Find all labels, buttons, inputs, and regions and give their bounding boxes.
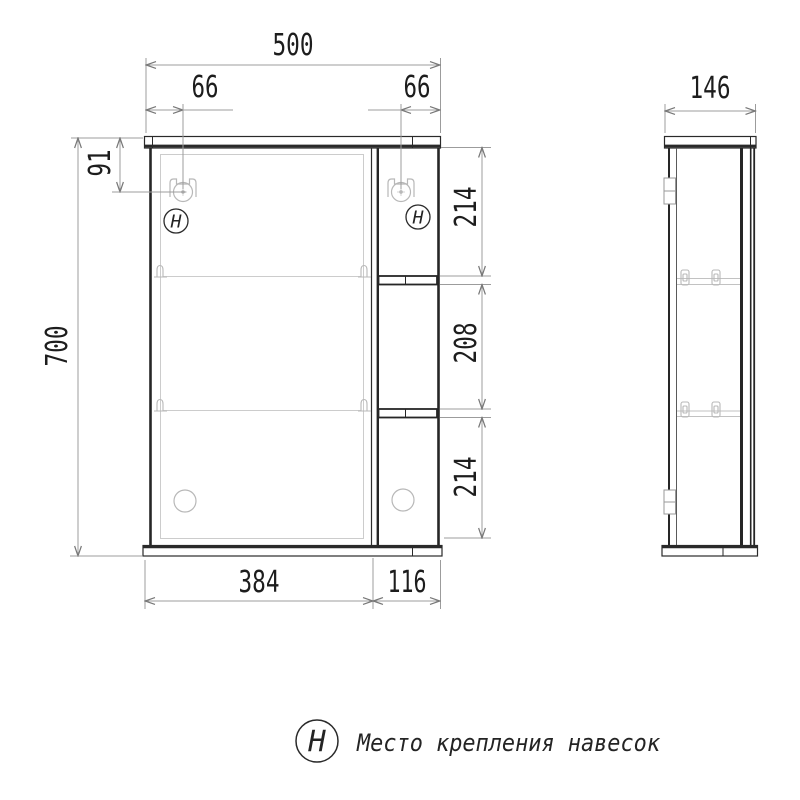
- dim-label-front-height: 700: [40, 326, 75, 367]
- dim-label-hook-right: 66: [404, 70, 431, 105]
- side-shelf-supports-upper: [677, 270, 740, 285]
- dim-label-side-depth: 146: [690, 71, 731, 106]
- dim-label-right-mid: 208: [449, 323, 484, 364]
- front-bottom-board: [143, 546, 442, 557]
- shelf-pin-icon: [712, 270, 720, 285]
- dim-label-door-width: 384: [239, 565, 280, 600]
- side-bottom-board: [662, 546, 758, 557]
- hinge-top: [664, 178, 676, 204]
- dim-label-hook-top: 91: [83, 150, 118, 177]
- shelf-clip-icon: [358, 266, 371, 278]
- dim-hook-left-offset: 66: [146, 70, 233, 189]
- hanger-mark-right: [406, 205, 430, 229]
- legend-hanger-mark-letter: Н: [307, 724, 326, 758]
- dim-front-height: 700: [40, 138, 142, 556]
- dim-label-open-shelf-width: 116: [388, 565, 427, 600]
- dim-right-chain: 214 208 214: [440, 148, 491, 539]
- bottom-hole-left: [174, 490, 196, 512]
- dim-label-hook-left: 66: [192, 70, 219, 105]
- legend: Н Место крепления навесок: [296, 720, 660, 762]
- dim-label-right-bottom: 214: [449, 457, 484, 498]
- open-shelf-upper: [379, 276, 438, 285]
- shelf-pin-icon: [712, 402, 720, 417]
- mirror-door-inner-outline: [161, 155, 364, 539]
- side-top-board: [665, 137, 757, 149]
- hanger-mark-left: [164, 209, 188, 233]
- bottom-hole-right: [392, 489, 414, 511]
- front-top-board: [145, 137, 441, 149]
- cabinet-drawing: Н: [0, 0, 800, 800]
- dim-front-width: 500: [146, 28, 441, 133]
- dim-label-front-width: 500: [273, 28, 314, 63]
- dim-label-right-top: 214: [449, 187, 484, 228]
- door-shelf-line-upper: [154, 266, 371, 278]
- door-shelf-line-lower: [154, 400, 371, 412]
- hinge-bottom: [664, 490, 676, 514]
- side-shelf-supports-lower: [677, 402, 740, 417]
- dim-side-depth: 146: [665, 71, 756, 133]
- front-view: [143, 137, 442, 557]
- shelf-pin-icon: [681, 270, 689, 285]
- shelf-clip-icon: [358, 400, 371, 412]
- technical-drawing-canvas: Н: [0, 0, 800, 800]
- dim-bottom-chain: 384 116: [145, 558, 441, 609]
- side-view: [662, 137, 758, 557]
- open-shelf-lower: [379, 409, 438, 418]
- legend-text: Место крепления навесок: [356, 729, 660, 757]
- dimensions: 500 66 66 91 700: [40, 28, 756, 609]
- shelf-pin-icon: [681, 402, 689, 417]
